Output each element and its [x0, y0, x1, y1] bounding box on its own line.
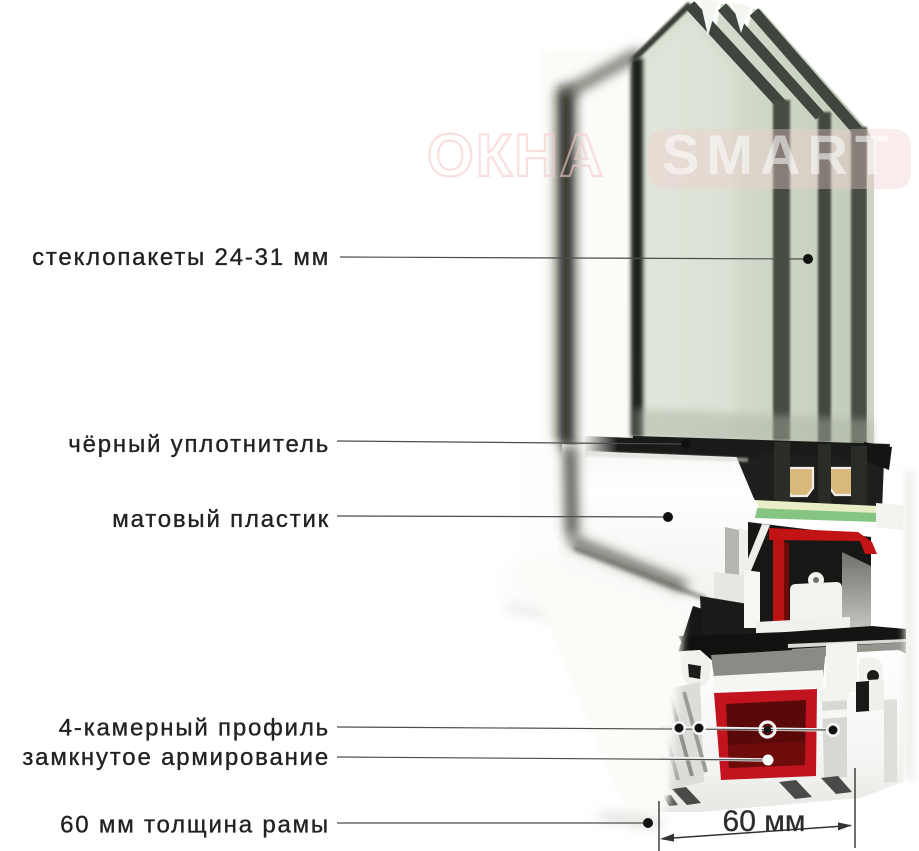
svg-text:стеклопакеты 24-31 мм: стеклопакеты 24-31 мм — [32, 244, 330, 271]
svg-text:ОКНА: ОКНА — [427, 122, 605, 189]
svg-text:замкнутое армирование: замкнутое армирование — [22, 744, 330, 771]
svg-text:чёрный уплотнитель: чёрный уплотнитель — [68, 431, 330, 458]
svg-text:60 мм: 60 мм — [723, 805, 806, 838]
svg-text:SMART: SMART — [662, 123, 896, 186]
svg-text:4-камерный профиль: 4-камерный профиль — [59, 715, 330, 742]
svg-text:матовый пластик: матовый пластик — [112, 506, 330, 533]
svg-text:60 мм толщина рамы: 60 мм толщина рамы — [60, 812, 330, 839]
